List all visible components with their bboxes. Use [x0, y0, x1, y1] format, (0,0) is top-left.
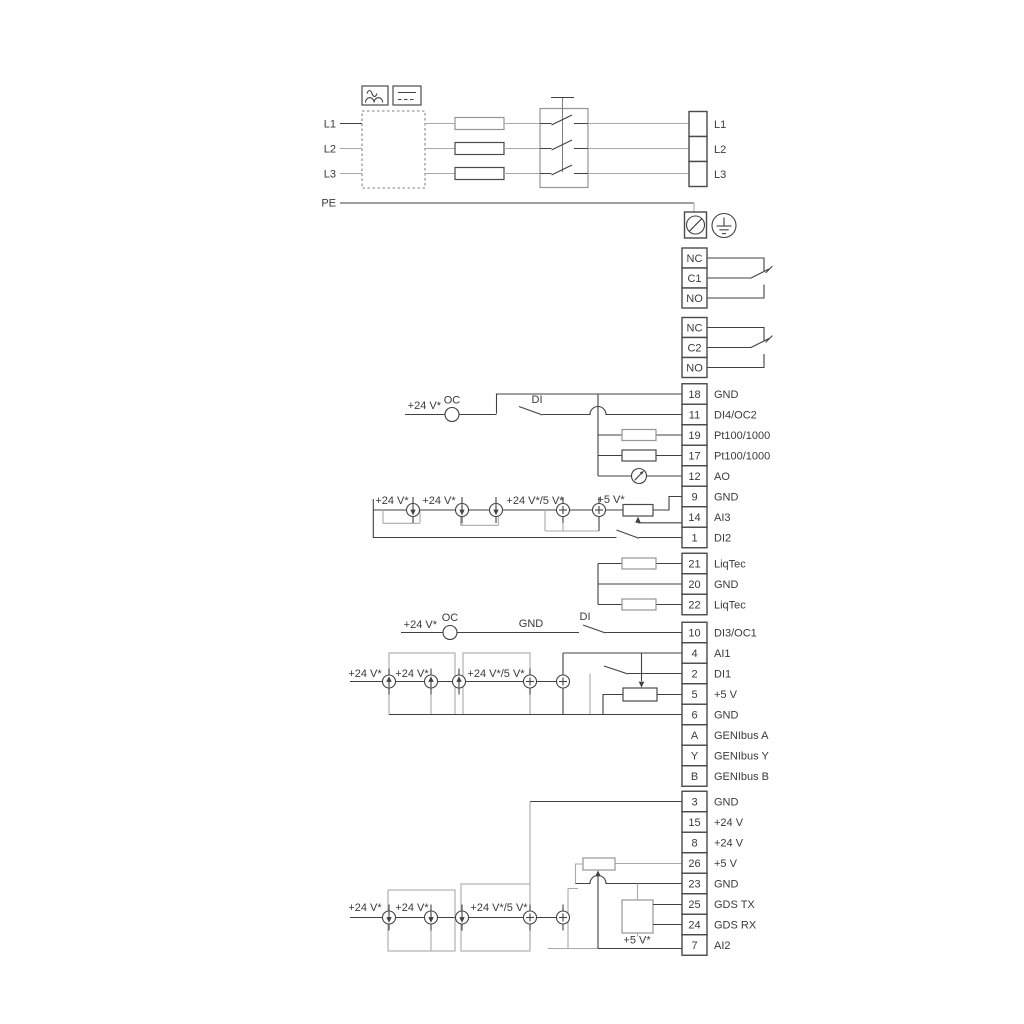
relay2-contact — [707, 328, 772, 368]
terminal-block-io3: 3GND15+24 V8+24 V26+5 V23GND25GDS TX24GD… — [682, 791, 757, 955]
terminal-label: GENIbus A — [714, 730, 769, 742]
di1-switch-icon — [604, 666, 628, 674]
terminal-number: 12 — [688, 471, 700, 483]
terminal-number: 26 — [688, 858, 700, 870]
terminal-number: 10 — [688, 627, 700, 639]
terminal-label: GND — [714, 709, 739, 721]
terminal-label: L3 — [714, 169, 726, 181]
label-24v: +24 V* — [395, 902, 429, 914]
terminal-number: 24 — [688, 919, 700, 931]
terminal-label: DI4/OC2 — [714, 409, 757, 421]
current-source-plus-icon — [557, 669, 570, 695]
terminal-block-relay1: NCC1NO — [682, 248, 707, 308]
terminal-number: 8 — [691, 837, 697, 849]
label-di: DI — [580, 611, 591, 623]
label-24v: +24 V* — [348, 902, 382, 914]
terminal-label: GND — [714, 796, 739, 808]
terminal-number: 15 — [688, 817, 700, 829]
terminal-block-liqtec: 21LiqTec20GND22LiqTec — [682, 553, 746, 615]
label-24v: +24 V* — [408, 400, 442, 412]
terminal-number: 9 — [691, 491, 697, 503]
io3-wiring: +24 V* +24 V* +24 V*/5 V* +5 V* — [348, 802, 682, 952]
terminal-label: L2 — [714, 144, 726, 156]
terminal-number: NO — [686, 293, 703, 305]
mains-input-label-l1: L1 — [324, 119, 336, 131]
label-24v: +24 V* — [375, 495, 409, 507]
di3-switch-icon — [583, 625, 606, 633]
pe-terminal — [685, 212, 707, 238]
liqtec-sensor-icon — [622, 558, 656, 569]
dc-symbol-icon — [393, 86, 421, 105]
terminal-label: +5 V — [714, 858, 738, 870]
terminal-label: AI3 — [714, 512, 731, 524]
terminal-label: Pt100/1000 — [714, 430, 770, 442]
protective-earth-icon — [712, 214, 736, 238]
terminal-cell — [689, 162, 707, 187]
terminal-number: A — [691, 730, 699, 742]
terminal-number: 14 — [688, 512, 700, 524]
terminal-label: AI1 — [714, 648, 731, 660]
terminal-label: Pt100/1000 — [714, 450, 770, 462]
pt100-sensor-icon — [622, 450, 656, 461]
fuse-icons — [455, 118, 504, 180]
wiper-arrow-icon — [639, 682, 645, 688]
current-source-plus-icon — [524, 669, 537, 695]
ac-symbol-icon — [362, 86, 388, 105]
terminal-number: 1 — [691, 532, 697, 544]
terminal-number: 22 — [688, 599, 700, 611]
terminal-label: GDS RX — [714, 919, 757, 931]
label-24v: +24 V* — [395, 668, 429, 680]
terminal-number: 3 — [691, 796, 697, 808]
terminal-label: GENIbus B — [714, 771, 769, 783]
terminal-number: NO — [686, 362, 703, 374]
wiper-arrow-icon — [635, 517, 641, 523]
terminal-number: 2 — [691, 668, 697, 680]
terminal-label: +24 V — [714, 817, 744, 829]
label-24v-5v: +24 V*/5 V* — [467, 668, 525, 680]
terminal-number: C2 — [687, 342, 701, 354]
terminal-number: 18 — [688, 389, 700, 401]
di2-switch-icon — [617, 530, 640, 538]
terminal-label: L1 — [714, 119, 726, 131]
terminal-label: GENIbus Y — [714, 750, 769, 762]
emc-filter-box — [362, 111, 425, 188]
label-24v-5v: +24 V*/5 V* — [506, 495, 564, 507]
current-source-down-icon — [383, 905, 396, 931]
di4-switch-icon — [519, 407, 543, 416]
terminal-label: DI1 — [714, 668, 731, 680]
terminal-number: 6 — [691, 709, 697, 721]
ai3-wiring: +24 V* +24 V* +24 V*/5 V* +5 V* — [373, 494, 682, 538]
wire-fuse-switch — [504, 124, 540, 174]
open-collector-icon — [445, 408, 459, 422]
current-source-down-icon — [456, 905, 469, 931]
potentiometer-icon — [623, 505, 653, 517]
pt100-sensor-icon — [622, 430, 656, 441]
gds-sensor-box — [622, 900, 653, 933]
label-oc: OC — [442, 612, 459, 624]
mains-input-label-l2: L2 — [324, 144, 336, 156]
terminal-label: AI2 — [714, 940, 731, 952]
terminal-label: GND — [714, 491, 739, 503]
terminal-number: 7 — [691, 940, 697, 952]
terminal-block-io1: 18GND11DI4/OC219Pt100/100017Pt100/100012… — [682, 384, 770, 548]
wiring-diagram-canvas: L1 L2 L3 PE +24 — [0, 0, 1024, 1024]
label-24v-5v: +24 V*/5 V* — [470, 902, 528, 914]
current-source-down-icon — [456, 497, 469, 523]
analog-output-meter-icon — [632, 469, 647, 484]
terminal-cell — [689, 112, 707, 137]
terminal-number: 20 — [688, 579, 700, 591]
terminal-number: 4 — [691, 648, 697, 660]
terminal-block-mains-output: L1L2L3 — [689, 112, 726, 187]
label-gnd: GND — [519, 618, 544, 630]
terminal-label: AO — [714, 471, 730, 483]
terminal-label: DI3/OC1 — [714, 627, 757, 639]
terminal-number: 25 — [688, 899, 700, 911]
label-oc: OC — [444, 395, 461, 407]
relay1-contact — [707, 258, 772, 298]
terminal-label: LiqTec — [714, 599, 746, 611]
terminal-number: Y — [691, 750, 699, 762]
liqtec-sensor-icon — [622, 599, 656, 610]
terminal-number: C1 — [687, 273, 701, 285]
liqtec-wiring — [598, 558, 682, 610]
terminal-block-io2: 10DI3/OC14AI12DI15+5 V6GNDAGENIbus AYGEN… — [682, 622, 769, 786]
wiper-arrow-icon — [595, 870, 601, 876]
label-di: DI — [532, 394, 543, 406]
label-24v: +24 V* — [422, 495, 456, 507]
current-source-up-icon — [383, 669, 396, 695]
current-source-down-icon — [490, 497, 503, 523]
terminal-number: 5 — [691, 689, 697, 701]
terminal-cell — [689, 137, 707, 162]
mains-section: L1 L2 L3 PE — [321, 86, 736, 238]
terminal-block-relay2: NCC2NO — [682, 318, 707, 378]
terminal-label: +5 V — [714, 689, 738, 701]
wiring-diagram: L1 L2 L3 PE +24 — [0, 0, 1024, 1024]
mains-input-label-pe: PE — [321, 198, 336, 210]
terminal-label: GND — [714, 579, 739, 591]
terminal-label: DI2 — [714, 532, 731, 544]
main-switch-icon — [540, 98, 588, 188]
potentiometer-icon — [583, 858, 615, 870]
terminal-label: LiqTec — [714, 558, 746, 570]
io1-wiring: +24 V* OC DI — [405, 394, 682, 484]
option-frame — [389, 653, 455, 715]
label-24v: +24 V* — [348, 668, 382, 680]
terminal-number: 21 — [688, 558, 700, 570]
wire-switch-terminals — [588, 124, 689, 174]
option-frame — [388, 890, 455, 951]
mains-input-label-l3: L3 — [324, 169, 336, 181]
terminal-number: 11 — [689, 409, 700, 421]
terminal-label: GDS TX — [714, 899, 755, 911]
wire-filter-fuse — [425, 124, 455, 174]
terminal-number: 17 — [688, 450, 700, 462]
terminal-number: NC — [687, 322, 703, 334]
io2-wiring: +24 V* OC GND DI +24 V* +24 V* +24 V*/5 … — [348, 611, 682, 715]
label-24v: +24 V* — [404, 619, 438, 631]
terminal-number: 23 — [688, 878, 700, 890]
terminal-number: B — [691, 771, 698, 783]
option-frame — [463, 653, 530, 715]
terminal-label: GND — [714, 389, 739, 401]
terminal-number: 19 — [688, 430, 700, 442]
terminal-number: NC — [687, 253, 703, 265]
terminal-label: +24 V — [714, 837, 744, 849]
open-collector-icon — [443, 626, 457, 640]
potentiometer-icon — [623, 688, 657, 701]
terminal-label: GND — [714, 878, 739, 890]
